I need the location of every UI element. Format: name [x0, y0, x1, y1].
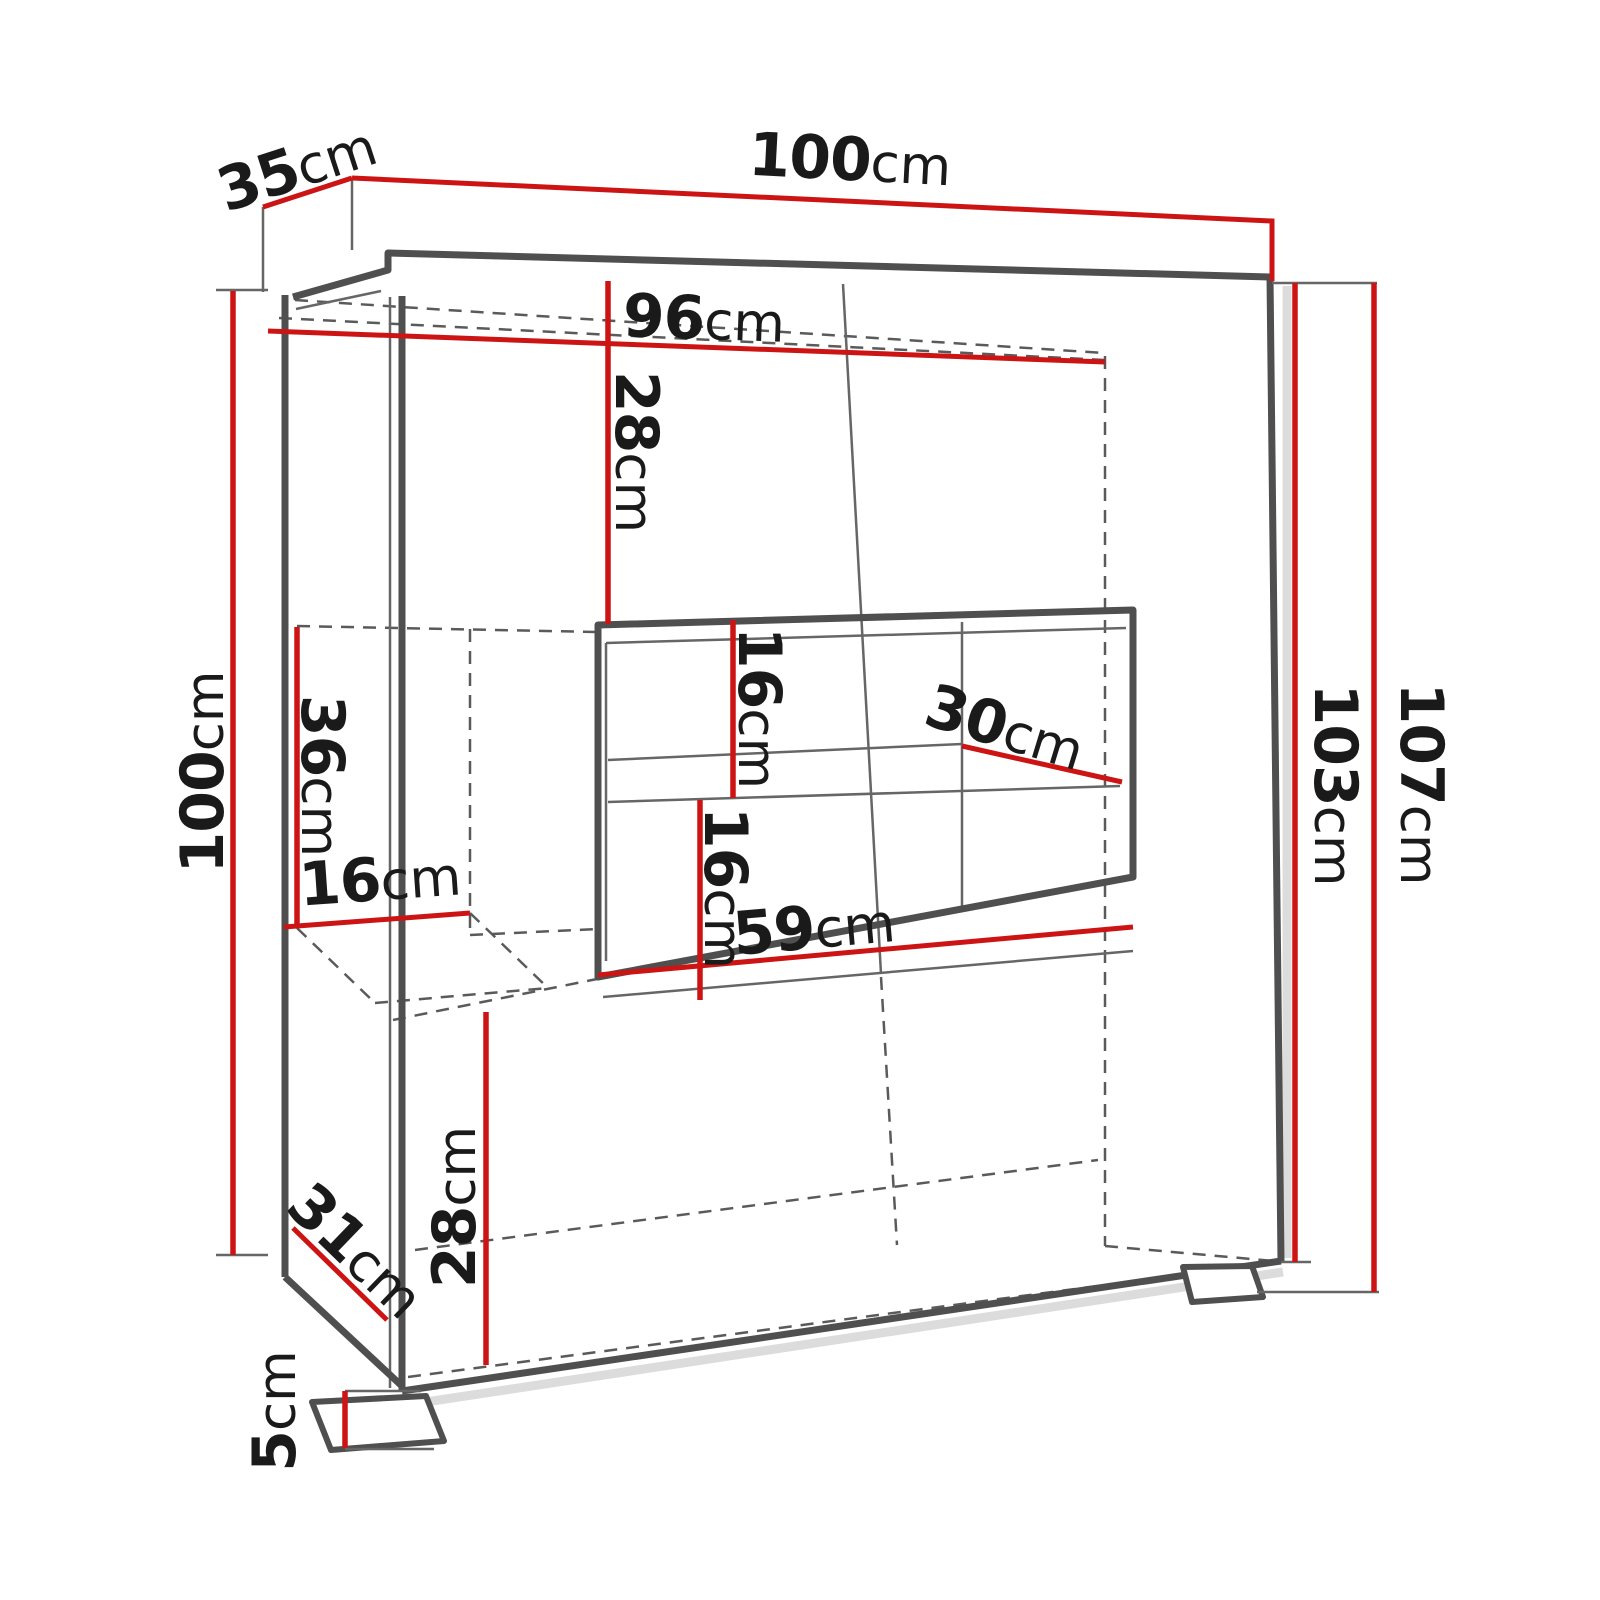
- dim-label-body-height: 103cm: [1300, 683, 1370, 886]
- front-right-edge: [1270, 277, 1281, 1261]
- dim-label-side-compartment-width: 16cm: [297, 839, 464, 920]
- center-seam-lower: [881, 977, 897, 1245]
- glass-shelf-front-edge: [608, 786, 1120, 802]
- floor-back-edge: [415, 1160, 1098, 1250]
- shadow-lines: [426, 286, 1287, 1402]
- front-bottom-edge: [402, 1261, 1281, 1391]
- dim-label-niche-upper-gap: 16cm: [724, 627, 794, 789]
- dim-label-upper-section-height: 28cm: [601, 371, 671, 533]
- dimension-diagram: 35cm 100cm 96cm 28cm 100cm 36cm 16cm 16c…: [0, 0, 1600, 1600]
- center-seam: [843, 284, 881, 974]
- left-foot: [312, 1396, 444, 1450]
- upper-shelf-edge-left: [297, 626, 598, 632]
- dim-label-lower-section-height: 28cm: [420, 1126, 490, 1288]
- bottom-back-depth-edge: [1105, 1246, 1274, 1261]
- side-shelf-depth-right: [470, 913, 548, 988]
- dim-label-width-top: 100cm: [747, 120, 953, 201]
- right-foot: [1183, 1266, 1263, 1302]
- dim-label-depth-top: 35cm: [209, 110, 385, 227]
- dim-label-inner-width: 96cm: [622, 281, 787, 357]
- dim-label-left-height: 100cm: [168, 670, 238, 873]
- bottom-shadow-line: [426, 1272, 1283, 1402]
- side-shelf-depth-left: [297, 928, 375, 1003]
- dim-label-niche-width: 59cm: [730, 886, 898, 970]
- dim-label-base-depth: 31cm: [273, 1169, 438, 1332]
- niche-frame-top-inner: [606, 628, 1126, 643]
- dim-label-niche-depth: 30cm: [917, 671, 1093, 785]
- dimension-labels: 35cm 100cm 96cm 28cm 100cm 36cm 16cm 16c…: [168, 110, 1456, 1472]
- top-edge: [293, 253, 1270, 297]
- dim-label-side-compartment-height: 36cm: [287, 695, 357, 857]
- dim-label-total-height: 107cm: [1386, 682, 1456, 885]
- dim-label-foot-height: 5cm: [240, 1350, 310, 1472]
